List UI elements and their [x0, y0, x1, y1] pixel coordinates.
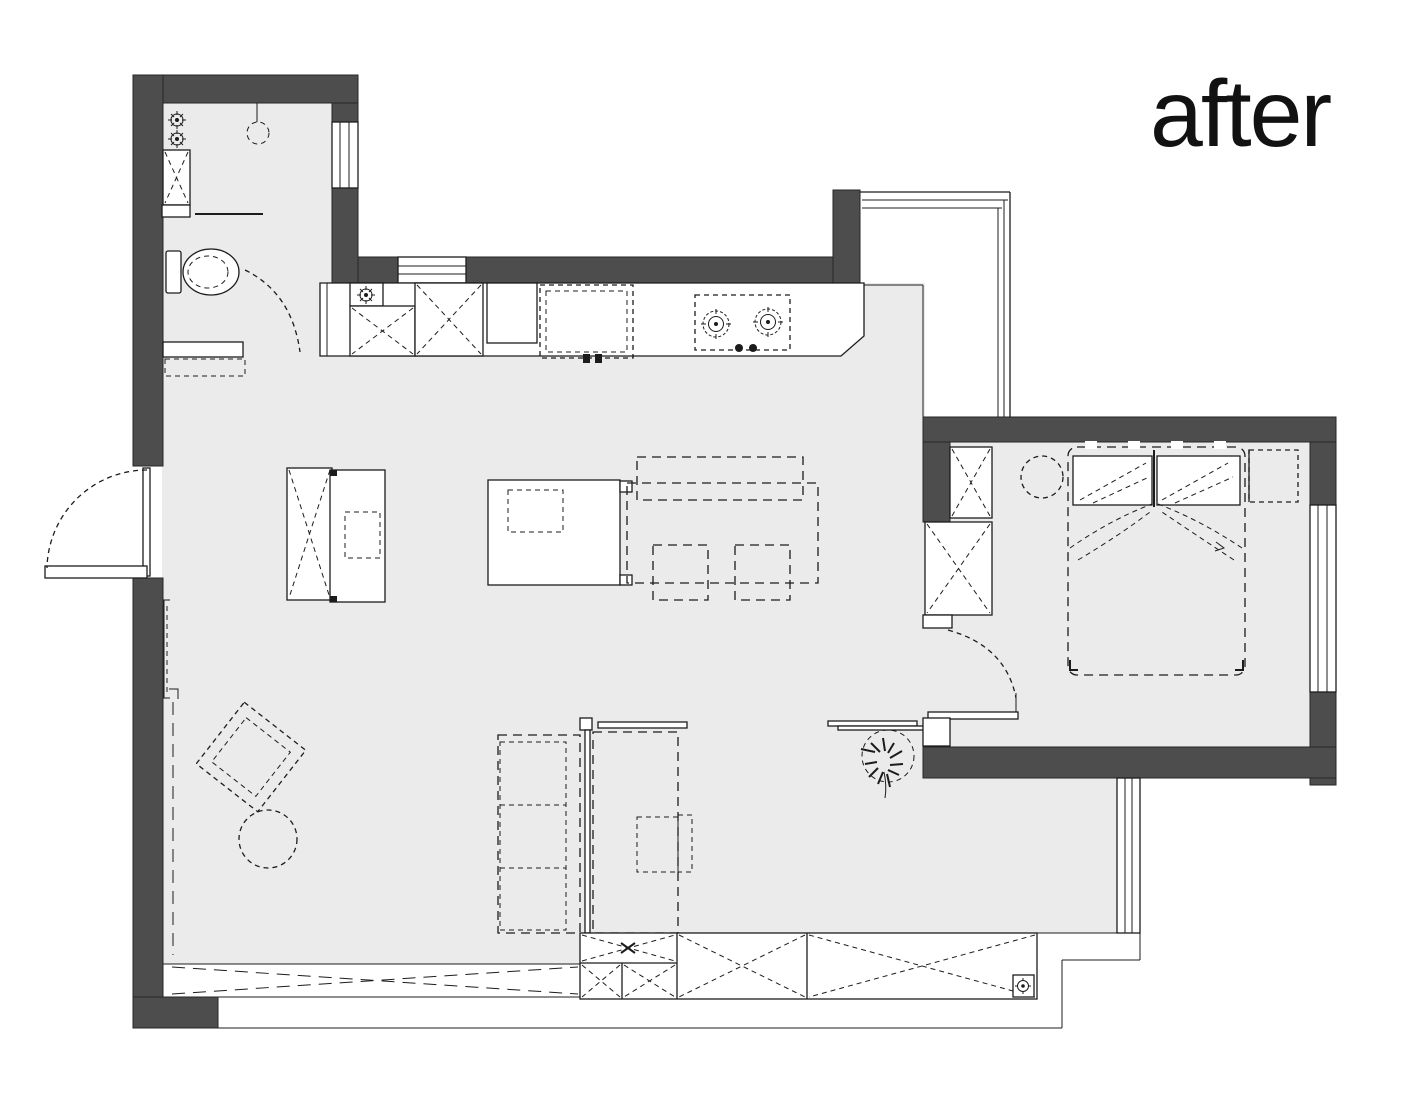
wall-bedroom-bottom: [923, 747, 1336, 778]
wall-kitchen-top-b: [466, 257, 855, 283]
floor-plan-page: after: [0, 0, 1416, 1095]
cooktop-knob: [735, 344, 743, 352]
bathroom-vanity: [163, 342, 243, 357]
wall-top-left: [133, 75, 358, 103]
wall-bath-right-lower: [332, 187, 358, 283]
entry-door-swing-arc: [47, 470, 147, 568]
living-kitchen-floor: [320, 283, 925, 964]
toilet: [166, 249, 239, 295]
window-bathroom: [332, 122, 358, 188]
kitchen: [320, 283, 864, 363]
window-bedroom-right: [1310, 505, 1336, 692]
entry-door-leaf: [45, 566, 147, 578]
low-floor-cabinet: [172, 967, 578, 994]
wall-stub: [923, 718, 950, 746]
wall-left-lower: [133, 578, 163, 997]
wall-bottom-left-corner: [133, 997, 218, 1028]
kitchen-cabinet-3: [487, 283, 537, 343]
window-lower-right: [1117, 778, 1140, 933]
wall-pillar: [833, 190, 860, 283]
kitchen-island-desk: [488, 480, 632, 585]
floor-plan-drawing: after: [0, 0, 1416, 1095]
wall-kitchen-top-a: [358, 257, 398, 283]
wall-left-upper: [133, 75, 163, 466]
wall-bedroom-right-upper: [1310, 442, 1336, 505]
window-kitchen: [398, 257, 466, 283]
bathroom-shelf: [162, 205, 190, 217]
wall-bedroom-top: [923, 417, 1336, 442]
door-jamb: [923, 615, 952, 628]
page-title: after: [1150, 61, 1331, 167]
cooktop-knob: [749, 344, 757, 352]
valve-box: [1013, 975, 1034, 997]
tv-unit: [287, 468, 385, 602]
bottom-wardrobe: [580, 933, 1037, 999]
entry-door-jamb: [143, 468, 150, 576]
entry-door: [45, 468, 150, 578]
wall-bedroom-left: [923, 442, 950, 522]
pillow: [1073, 456, 1152, 505]
wall-bath-right-upper: [332, 103, 358, 123]
